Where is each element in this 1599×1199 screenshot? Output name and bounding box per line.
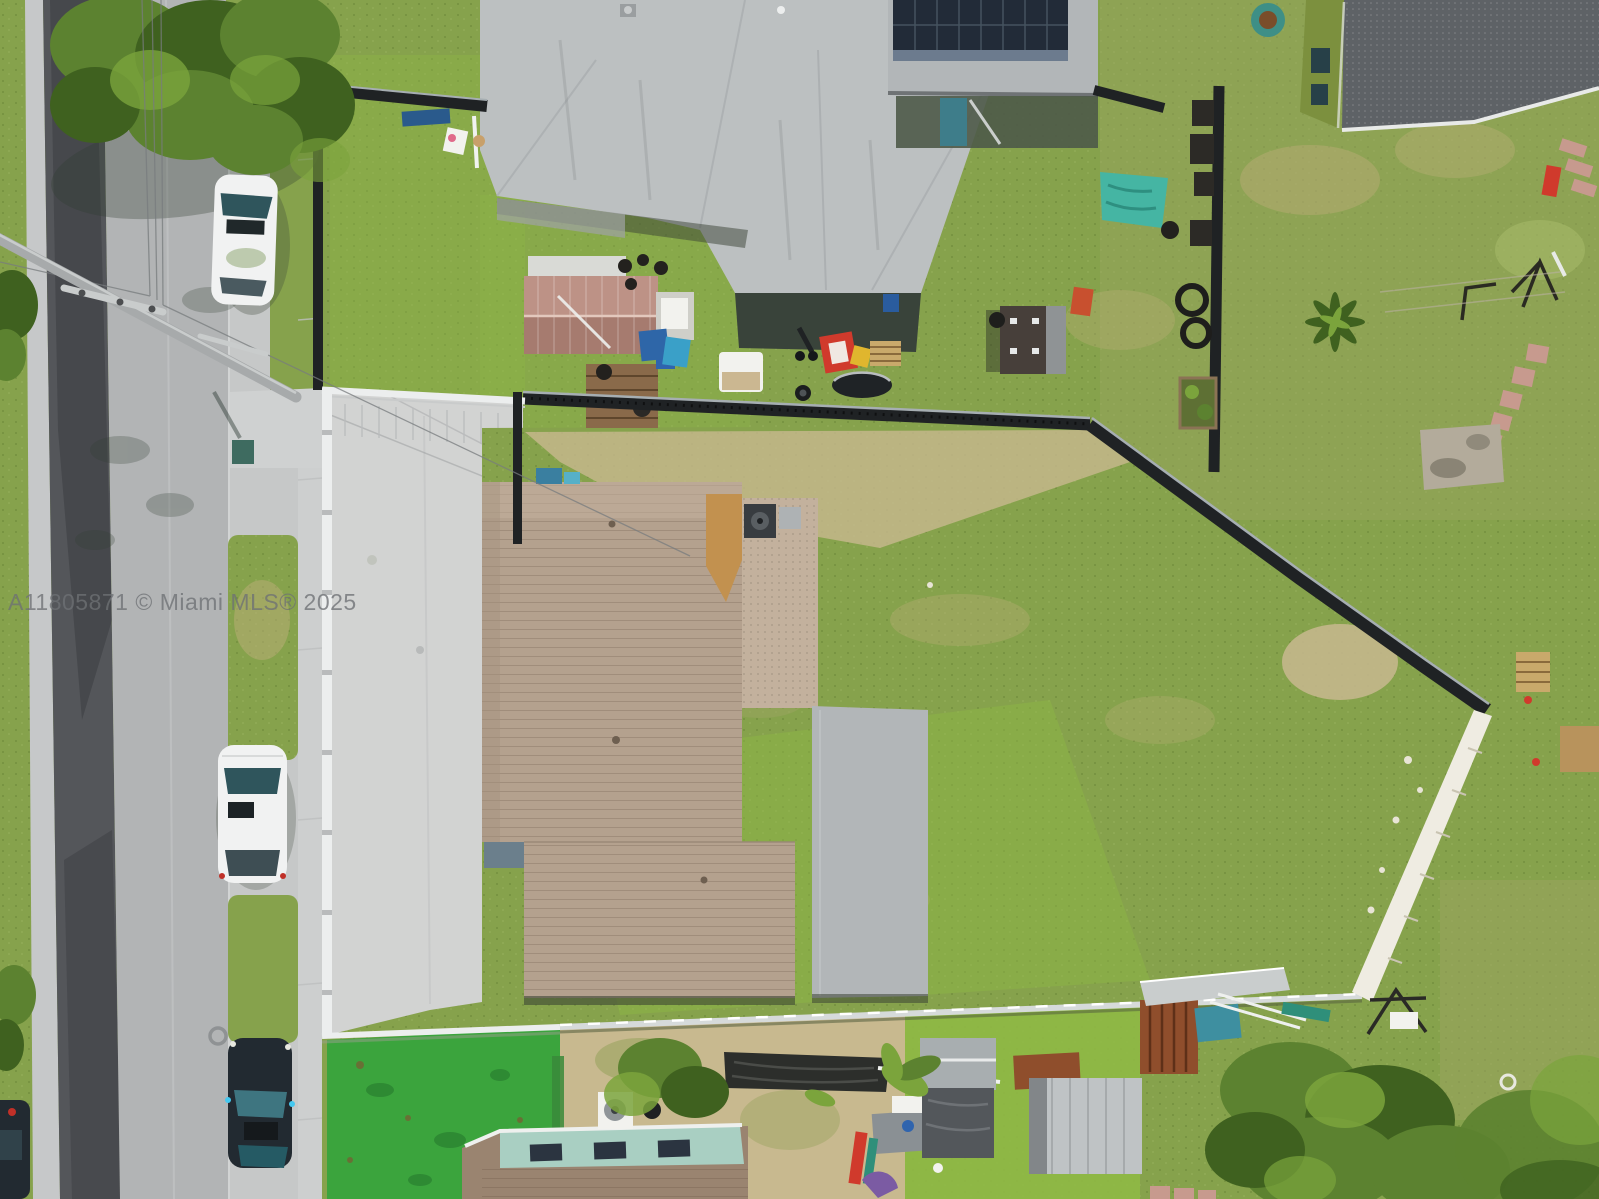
shed-tarp-lower xyxy=(922,1088,994,1158)
teal-item-roof-edge xyxy=(564,472,580,484)
taillight xyxy=(8,1108,16,1116)
sunroof xyxy=(228,802,254,818)
car-glass xyxy=(0,1130,22,1160)
white-fence-driveway-west xyxy=(322,388,332,1036)
green-mesh-screen xyxy=(552,1056,564,1134)
tire xyxy=(989,312,1005,328)
window xyxy=(1311,84,1328,105)
solar-house-eave xyxy=(888,93,1098,95)
mirror-glint xyxy=(289,1101,295,1107)
garden-planter-box xyxy=(1180,378,1216,428)
verge-grass xyxy=(228,895,298,1043)
white-box xyxy=(1390,1012,1418,1029)
teal-tarp xyxy=(1100,172,1168,228)
red-dot-item xyxy=(1532,758,1540,766)
mirror-glint xyxy=(225,1097,231,1103)
mls-watermark: A11805871 © Miami MLS® 2025 xyxy=(8,589,357,615)
cart-bed xyxy=(722,372,760,390)
red-wagon-inner xyxy=(828,341,848,365)
roof-vent-dot xyxy=(609,521,616,528)
dry-patch xyxy=(1105,696,1215,744)
window xyxy=(1311,48,1330,73)
dark-shed-stripe xyxy=(1046,306,1066,374)
hand-truck-wheel xyxy=(795,351,805,361)
hand-truck-wheel xyxy=(808,351,818,361)
awning-shadow-edge xyxy=(1029,1078,1047,1174)
shed-roof-lower xyxy=(524,316,658,354)
black-corner-post xyxy=(513,392,522,544)
windshield xyxy=(234,1090,287,1118)
dry-patch xyxy=(1395,122,1515,178)
tan-item xyxy=(473,135,485,147)
dark-item xyxy=(596,364,612,380)
pink-mark xyxy=(448,134,456,142)
planter-soil xyxy=(1259,11,1277,29)
blue-bin xyxy=(662,336,691,367)
windshield xyxy=(224,768,281,794)
main-roof-lower-shingles xyxy=(524,842,795,998)
white-box xyxy=(661,298,688,329)
driveway-stain xyxy=(367,555,377,565)
ac-unit-teal xyxy=(940,98,967,146)
concrete-pad xyxy=(1420,424,1504,490)
solar-panel-shadow xyxy=(893,50,1068,61)
leaf-shadow-on-car xyxy=(226,248,266,268)
dry-patch xyxy=(1240,145,1380,215)
taillight xyxy=(280,873,286,879)
utility-box xyxy=(232,440,254,464)
teal-item-roof-edge xyxy=(536,468,562,484)
roof-vent-dot xyxy=(612,736,620,744)
rear-window xyxy=(238,1145,288,1168)
headlight xyxy=(230,1041,236,1047)
roof-edge-shade xyxy=(482,482,500,842)
blue-gray-tarp xyxy=(484,842,526,868)
car-roof xyxy=(244,1122,278,1140)
roof-vent-cap xyxy=(624,6,632,14)
black-shade-tarp xyxy=(724,1052,890,1092)
plant xyxy=(1197,404,1213,420)
bright-patch xyxy=(1495,220,1585,280)
asphalt-patch-bottom xyxy=(64,830,122,1199)
dry-patch xyxy=(890,594,1030,646)
roof-pipe xyxy=(777,6,785,14)
blue-barrel xyxy=(883,294,899,312)
roof-vent-dot xyxy=(701,877,708,884)
eave-shadow-bottom xyxy=(524,996,795,1005)
shed-roof-upper xyxy=(524,276,658,316)
taillight xyxy=(219,873,225,879)
kettle-grill-lid xyxy=(800,390,807,397)
parked-car-middle-white xyxy=(216,745,296,890)
red-dot-item xyxy=(1524,696,1532,704)
eave-shadow-bottom xyxy=(812,994,928,1003)
rooftop-box xyxy=(779,507,801,529)
aerial-photo-canvas: A11805871 © Miami MLS® 2025 xyxy=(0,0,1599,1199)
palm-yucca xyxy=(1305,292,1365,352)
aerial-photo: A11805871 © Miami MLS® 2025 xyxy=(0,0,1599,1199)
wood-pallet xyxy=(1560,726,1599,772)
windshield xyxy=(220,193,273,219)
bottom-roof-shingles xyxy=(482,1168,748,1199)
parked-car-top-white xyxy=(211,174,290,315)
rust-shed xyxy=(1140,1000,1198,1074)
white-bucket xyxy=(933,1163,943,1173)
plant xyxy=(1185,385,1199,399)
parked-car-bottom-dark xyxy=(225,1038,295,1168)
rear-gray-roof xyxy=(812,706,928,998)
headlight xyxy=(285,1044,291,1050)
sunroof xyxy=(226,219,264,234)
driveway-stain xyxy=(416,646,424,654)
red-table xyxy=(1070,287,1094,317)
dark-item xyxy=(1161,221,1179,239)
blue-bucket xyxy=(902,1120,914,1132)
rear-window xyxy=(225,850,280,876)
parked-car-corner-partial xyxy=(0,1100,30,1199)
rooftop-ac-hub xyxy=(757,518,763,524)
pad-stain xyxy=(1466,434,1490,450)
pad-stain xyxy=(1430,458,1466,478)
